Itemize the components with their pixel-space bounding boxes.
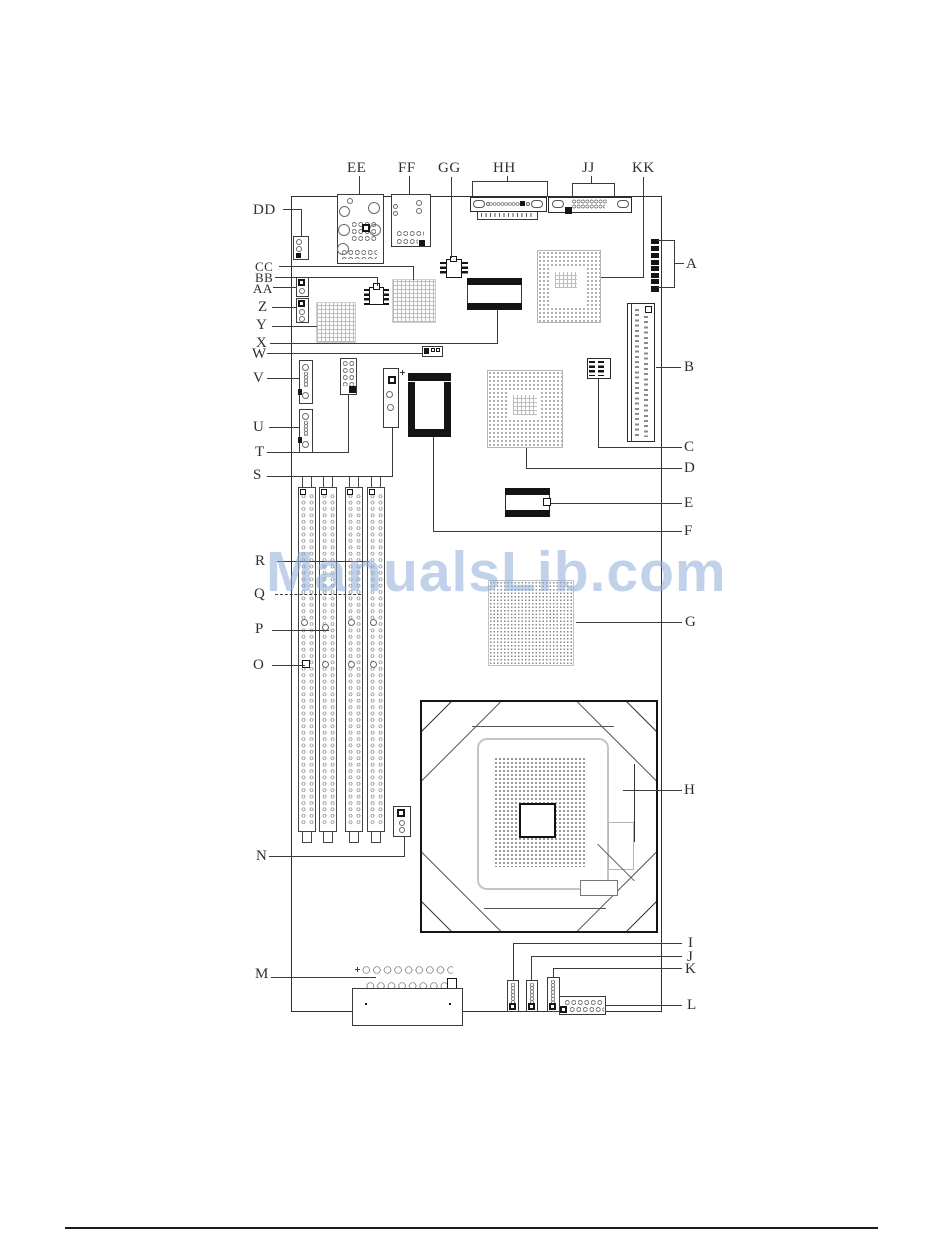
callout-b: B [684,360,695,375]
bga-chip-g [488,580,574,666]
leader-q [275,594,361,595]
pin [296,239,302,245]
pin-1-marker [298,279,305,286]
callout-e: E [684,496,694,511]
leader-n [404,836,405,857]
port-screw-hole [473,200,485,208]
leader-dd [301,209,302,237]
leader-i [513,943,682,944]
pin [299,316,305,322]
socket-f-right [444,382,451,429]
socket-x-side [521,285,522,303]
ic-pins [598,361,604,376]
pin-1-marker [645,306,652,313]
plus-mark [357,967,358,972]
pin-column [550,980,556,1003]
pin [338,224,350,236]
pin-1-marker [419,240,425,246]
socket-e-bottom [505,510,550,517]
callout-ff: FF [398,161,416,176]
leader-c [598,379,599,448]
mark [365,1003,367,1005]
callout-kk: KK [632,161,655,176]
slot-hole [301,619,308,626]
pin-column [301,493,306,825]
leader-f [433,531,682,532]
callout-u: U [253,420,264,435]
dimm-tab [323,831,333,843]
pin [486,202,490,206]
leader-j [531,956,682,957]
lever-line [634,764,635,842]
pin [299,309,305,315]
leader-hh-bracket [472,181,473,197]
connector-b-inner-edge [631,303,632,442]
leader-ee [359,176,360,194]
leader-x [497,310,498,344]
chip-center-pattern [555,272,577,288]
leader-kk [643,177,644,278]
callout-dd: DD [253,203,276,218]
manual-page: EE FF GG HH JJ KK DD CC BB AA Z Y X W V … [0,0,950,1257]
leader-o [272,665,305,666]
callout-ee: EE [347,161,366,176]
pin-column [370,493,375,825]
leader-aa [273,287,297,288]
leader-r [277,561,369,562]
pin-column [303,421,309,436]
pin-grid [342,360,355,386]
leader-cc [413,266,414,280]
socket-x-side [467,285,468,303]
pin-row [569,1006,604,1013]
pin [399,827,405,833]
callout-w: W [252,347,267,362]
port-tab-edge [537,212,538,219]
port-tab-edge [477,212,478,219]
slot-hole [348,619,355,626]
port-tab-edge [477,219,538,220]
leader-f [433,437,434,532]
callout-n: N [256,849,267,864]
callout-r: R [255,554,266,569]
slot-hole [322,661,329,668]
pin-1-marker [565,207,572,214]
pin-ticks [481,213,534,217]
pin-1-marker [298,300,305,307]
plus-mark [402,370,403,375]
chip-cc [392,279,436,323]
leader-u [269,427,300,428]
mark [449,1003,451,1005]
jumper [651,266,659,278]
pin [416,200,422,206]
pin-1-marker [300,489,306,495]
leader-gg [451,177,452,258]
callout-d: D [684,461,695,476]
pin-row [564,999,604,1006]
slot-hole-o [302,660,310,668]
jumper [651,253,659,265]
leader-k [553,968,554,978]
pin-1-marker [424,348,429,354]
callout-a: A [686,257,697,272]
leader-s [392,428,393,477]
pin [302,413,309,420]
leader-j [531,956,532,981]
leader-p [272,630,329,631]
callout-g: G [685,615,696,630]
leader-a-bracket [657,240,675,241]
socket-f-top [408,373,451,381]
pin [299,288,305,294]
leader-dd [283,209,302,210]
pin [399,820,405,826]
pin-column [644,316,648,437]
pin-column [322,493,327,825]
callout-c: C [684,440,695,455]
leader-jj-bracket [572,183,573,197]
pin [387,404,394,411]
leader-l [605,1005,682,1006]
slot-hole [348,661,355,668]
pin-1-marker [509,1003,516,1010]
pin-1-marker [296,253,301,258]
leader-jj-bracket [614,183,615,197]
callout-q: Q [254,587,265,602]
pin-1-marker [528,1003,535,1010]
dimm-tab [349,831,359,843]
socket-x-top [467,278,522,285]
pin [302,392,309,399]
pin-column [330,493,335,825]
ic-pins [589,361,595,376]
leader-n [269,856,405,857]
pin-row [361,965,453,975]
callout-f: F [684,524,693,539]
leader-a-bracket [674,240,675,288]
pin-row [396,238,418,246]
leader-k [553,968,682,969]
socket-cam-notch [608,822,634,870]
callout-z: Z [258,300,268,315]
leader-m [271,977,376,978]
pin [347,198,353,204]
slot-hole [370,661,377,668]
pin-1-marker [362,224,370,232]
pin-1-marker [369,489,375,495]
leader-e [551,503,682,504]
pin [368,202,380,214]
pin [339,206,350,217]
pin-row [341,249,377,259]
pin-column [529,983,535,1003]
leader-h [623,790,682,791]
pin-1-marker [549,1003,556,1010]
port-screw-hole [531,200,543,208]
pin [436,348,440,352]
pin [386,391,393,398]
callout-s: S [253,468,262,483]
leader-x [270,343,498,344]
pin-row [396,230,424,238]
leader-s [267,476,393,477]
pin-1-marker [560,1006,567,1013]
leader-t [267,452,349,453]
footer-rule [65,1227,878,1229]
pin-column [309,493,314,825]
pin-row [489,201,520,207]
dimm-tab [302,831,312,843]
leader-w [267,353,423,354]
callout-k: K [685,962,696,977]
leader-b [656,367,681,368]
leader-jj-bracket [572,183,615,184]
pin-1-marker [397,809,405,817]
leader-t [348,394,349,453]
retention-bar [484,908,606,909]
socket-x-bottom [467,303,522,310]
leader-hh-bracket [472,181,548,182]
leader-y [272,326,317,327]
callout-hh: HH [493,161,516,176]
jumper [651,279,659,292]
pin [393,211,398,216]
pin-column [378,493,383,825]
callout-l: L [687,998,697,1013]
leader-bb [377,277,378,286]
pin-1-marker [388,376,396,384]
chip-center-pattern [513,395,537,415]
chip-y [316,302,356,343]
socket-f-bottom [408,429,451,437]
pin-column [510,983,516,1003]
pin-column [635,309,639,437]
leader-g [576,622,682,623]
callout-jj: JJ [582,161,595,176]
port-screw-hole [552,200,564,208]
pin [526,202,530,206]
callout-v: V [253,371,264,386]
pin-1-marker [349,386,356,393]
callout-h: H [684,783,695,798]
callout-m: M [255,967,269,982]
pin [296,246,302,252]
callout-aa: AA [253,282,273,295]
pin-1-marker [347,489,353,495]
leader-d [526,448,527,469]
callout-o: O [253,658,264,673]
dimm-tab [371,831,381,843]
pin [393,204,398,209]
callout-t: T [255,445,265,460]
pin-column [356,493,361,825]
battery-holder-m [352,988,463,1026]
leader-ff [409,176,410,194]
leader-a-bracket [657,287,675,288]
leader-hh-bracket [547,181,548,197]
pin [416,208,422,214]
slot-hole [370,619,377,626]
callout-gg: GG [438,161,461,176]
pin [302,364,309,371]
callout-p: P [255,622,264,637]
leader-c [598,447,682,448]
callout-y: Y [256,318,267,333]
leader-v [267,378,300,379]
leader-d [526,468,682,469]
retention-bar [472,726,614,727]
leader-kk [601,277,644,278]
pin [302,441,309,448]
socket-step [580,880,618,896]
socket-center-hole [519,803,556,838]
leader-i [513,943,514,981]
leader-a [674,263,684,264]
ic-pins-right [462,262,468,275]
leader-z [272,307,297,308]
socket-e-notch [543,498,551,506]
pin-column [348,493,353,825]
port-screw-hole [617,200,629,208]
socket-f-left [408,382,415,429]
pin-1-marker [321,489,327,495]
leader-bb [275,277,378,278]
pin-row [572,204,605,209]
socket-e-top [505,488,550,495]
pin-column [303,372,309,387]
cpu-socket [420,700,658,933]
pin [431,348,435,352]
pin-1-marker [520,201,525,206]
leader-cc [279,266,414,267]
